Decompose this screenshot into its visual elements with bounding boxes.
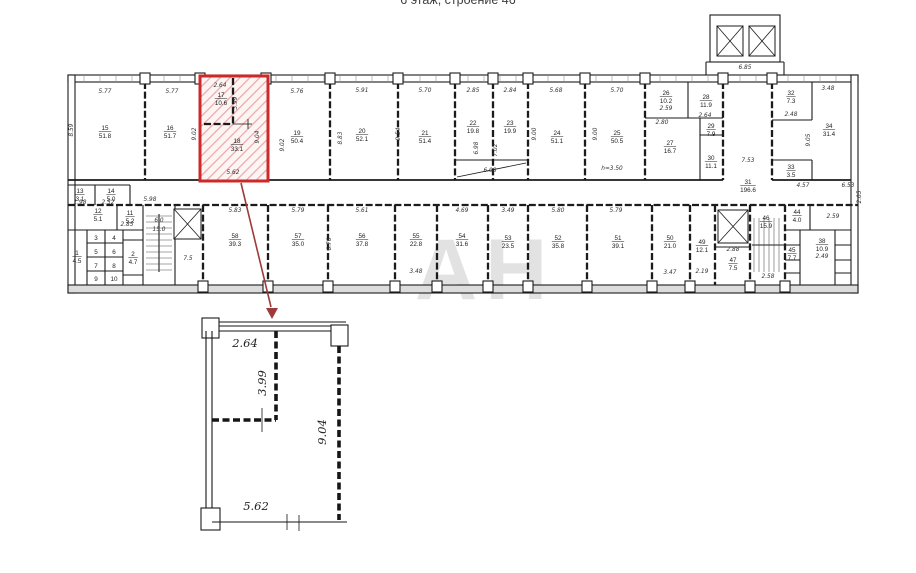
room-number: 58 (231, 233, 239, 240)
room-number: 15 (101, 125, 109, 132)
room-number: 29 (707, 123, 715, 130)
detail-dimension-label: 2.64 (231, 336, 258, 350)
room-number: 14 (107, 188, 115, 195)
dimension-label: 6.85 (739, 65, 752, 71)
dimension-label: 5.68 (550, 88, 563, 94)
room-number: 38 (818, 238, 826, 245)
room-number: 50 (666, 235, 674, 242)
dimension-label: 5.70 (611, 88, 624, 94)
room-area: 4.0 (793, 217, 802, 224)
highlighted-room (200, 76, 268, 181)
room-number: 1 (75, 250, 79, 257)
room-area: 7.5 (729, 265, 738, 272)
room-area: 4.7 (129, 259, 138, 266)
room-number: 19 (293, 130, 301, 137)
dimension-label: 7.5 (183, 256, 193, 262)
dimension-label: 2.19 (696, 269, 709, 275)
arrowhead-icon (266, 308, 278, 319)
detail-dimension-label: 3.99 (255, 370, 269, 396)
dimension-label: 7.02 (493, 143, 499, 156)
room-number: 34 (825, 123, 833, 130)
room-area: 39.3 (229, 241, 242, 248)
dimension-label: 6.53 (842, 183, 855, 189)
room-number: 13 (76, 188, 84, 195)
dimension-label: 3.48 (822, 86, 835, 92)
room-area: 51.4 (419, 138, 432, 145)
room-number: 53 (504, 235, 512, 242)
dimension-label: 9.02 (192, 127, 198, 140)
room-number: 45 (788, 247, 796, 254)
room-area: 19.8 (467, 128, 480, 135)
dimension-label: 9.02 (280, 138, 286, 151)
room-area: 50.4 (291, 138, 304, 145)
room-number: 47 (729, 257, 737, 264)
room-area: 196.6 (740, 187, 756, 194)
dimension-label: 8.59 (69, 123, 75, 136)
room-number: 3 (94, 235, 98, 242)
dimension-label: 5.80 (552, 208, 565, 214)
room-number: 52 (554, 235, 562, 242)
room-area: 39.1 (612, 243, 625, 250)
room-number: 31 (744, 179, 752, 186)
dimension-label: 2.84 (504, 88, 517, 94)
room-area: 5.1 (94, 216, 103, 223)
dimension-label: 3.47 (664, 270, 677, 276)
room-area: 10.6 (215, 100, 228, 107)
dimension-label: 2.85 (467, 88, 480, 94)
room-area: 35.0 (292, 241, 305, 248)
dimension-label: 9.00 (593, 127, 599, 140)
room-number: 24 (553, 130, 561, 137)
room-number: 32 (787, 90, 795, 97)
room-area: 15.9 (760, 223, 773, 230)
room-number: 26 (662, 90, 670, 97)
room-area: 10.2 (660, 98, 673, 105)
dimension-label: 5.77 (99, 89, 112, 95)
room-number: 2 (131, 251, 135, 258)
dimension-label: 5.77 (166, 89, 179, 95)
dimension-label: 3.99 (233, 96, 239, 109)
room-number: 25 (613, 130, 621, 137)
room-area: 10.9 (816, 246, 829, 253)
dimension-label: 2.88 (727, 247, 740, 253)
dimension-label: 2.85 (121, 222, 134, 228)
dimension-label: 2.59 (827, 214, 840, 220)
room-number: 27 (666, 140, 674, 147)
room-number: 10 (110, 276, 118, 283)
dimension-label: 6.98 (474, 141, 480, 154)
dimension-label: 2.48 (785, 112, 798, 118)
detail-dimension-label: 9.04 (315, 419, 329, 445)
room-number: 8 (112, 263, 116, 270)
dimension-label: 9.04 (255, 130, 261, 143)
room-number: 11 (127, 210, 134, 217)
room-number: 51 (614, 235, 622, 242)
room-area: 21.0 (664, 243, 677, 250)
room-area: 7.9 (707, 131, 716, 138)
room-number: 49 (698, 239, 706, 246)
room-area: 7.7 (788, 255, 797, 262)
dimension-label: 9.05 (806, 133, 812, 146)
room-area: 3.5 (787, 172, 796, 179)
room-area: 16.7 (664, 148, 677, 155)
top-row-partitions (68, 82, 851, 180)
room-area: 19.9 (504, 128, 517, 135)
dimension-label: 6.76 (327, 237, 333, 250)
dimension-label: 5.83 (229, 208, 242, 214)
room-number: 57 (294, 233, 302, 240)
room-number: 17 (217, 92, 225, 99)
room-area: 11.1 (705, 163, 717, 170)
room-number: 54 (458, 233, 466, 240)
room-number: 56 (358, 233, 366, 240)
dimension-label: 3.48 (410, 269, 423, 275)
room-number: 9 (94, 276, 98, 283)
room-number: 16 (166, 125, 174, 132)
room-area: 52.1 (356, 136, 369, 143)
dimension-label: 2.58 (762, 274, 775, 280)
dimension-label: 5.70 (419, 88, 432, 94)
dimension-label: 5.76 (291, 89, 304, 95)
arrow-connector (241, 183, 278, 319)
room-number: 28 (702, 94, 710, 101)
room-area: 12.1 (696, 247, 709, 254)
dimension-label: 1.98 (74, 200, 87, 206)
dimension-label: 7.53 (742, 158, 755, 164)
room-number: 18 (233, 138, 241, 145)
exterior-wall-band (68, 285, 858, 293)
room-number: 23 (506, 120, 514, 127)
room-number: 4 (112, 235, 116, 242)
detail-dimension-label: 5.62 (243, 499, 269, 513)
dimension-label: 15.0 (153, 227, 166, 233)
dimension-label: 5.61 (356, 208, 369, 214)
dimension-label: 4.57 (797, 183, 810, 189)
floor-plan-svg: АН (0, 0, 916, 573)
dimension-label: 2.05 (857, 190, 863, 203)
room-area: 35.8 (552, 243, 565, 250)
dimension-label: 3.49 (502, 208, 515, 214)
dimension-label: 2.49 (816, 254, 829, 260)
room-area: 51.8 (99, 133, 112, 140)
room-area: 31.6 (456, 241, 469, 248)
room-number: 33 (787, 164, 795, 171)
room-number: 55 (412, 233, 420, 240)
dimension-label: 9.54 (396, 127, 402, 140)
room-area: 4.5 (73, 258, 82, 265)
room-number: 46 (762, 215, 770, 222)
dimension-label: 6.08 (484, 168, 497, 174)
dimension-label: 5.91 (356, 88, 369, 94)
dimension-label: 5.79 (292, 208, 305, 214)
room-area: 51.7 (164, 133, 177, 140)
dimension-label: 2.52 (102, 200, 115, 206)
room-number: 30 (707, 155, 715, 162)
room-area: 7.3 (787, 98, 796, 105)
dimension-label: 8.83 (338, 131, 344, 144)
screenshot-root: 6 этаж, строение 46 АН (0, 0, 916, 573)
dimension-label: h=3.50 (601, 166, 623, 172)
dimension-label: 2.59 (660, 106, 673, 112)
room-number: 20 (358, 128, 366, 135)
room-area: 37.8 (356, 241, 369, 248)
room-number: 12 (94, 208, 102, 215)
dimension-label: 6.0 (154, 218, 164, 224)
dimension-label: 9.00 (532, 127, 538, 140)
room-area: 11.9 (700, 102, 712, 109)
dimension-label: 5.62 (227, 170, 240, 176)
room-number: 7 (94, 263, 98, 270)
dimension-label: 2.64 (699, 113, 712, 119)
dimension-label: 2.80 (656, 120, 669, 126)
room-area: 22.8 (410, 241, 423, 248)
room-area: 51.1 (551, 138, 564, 145)
dimension-label: 5.79 (610, 208, 623, 214)
detail-dimension-labels: 2.643.999.045.62 (231, 336, 329, 513)
dimension-label: 2.64 (214, 83, 227, 89)
room-number: 22 (469, 120, 477, 127)
dimension-label: 4.69 (456, 208, 469, 214)
room-area: 31.4 (823, 131, 836, 138)
room-area: 33.1 (231, 146, 244, 153)
room-area: 50.5 (611, 138, 624, 145)
room-number: 21 (421, 130, 429, 137)
room-number: 44 (793, 209, 801, 216)
dimension-label: 5.98 (144, 197, 157, 203)
room-number: 5 (94, 249, 98, 256)
room-number: 6 (112, 249, 116, 256)
room-area: 23.5 (502, 243, 515, 250)
